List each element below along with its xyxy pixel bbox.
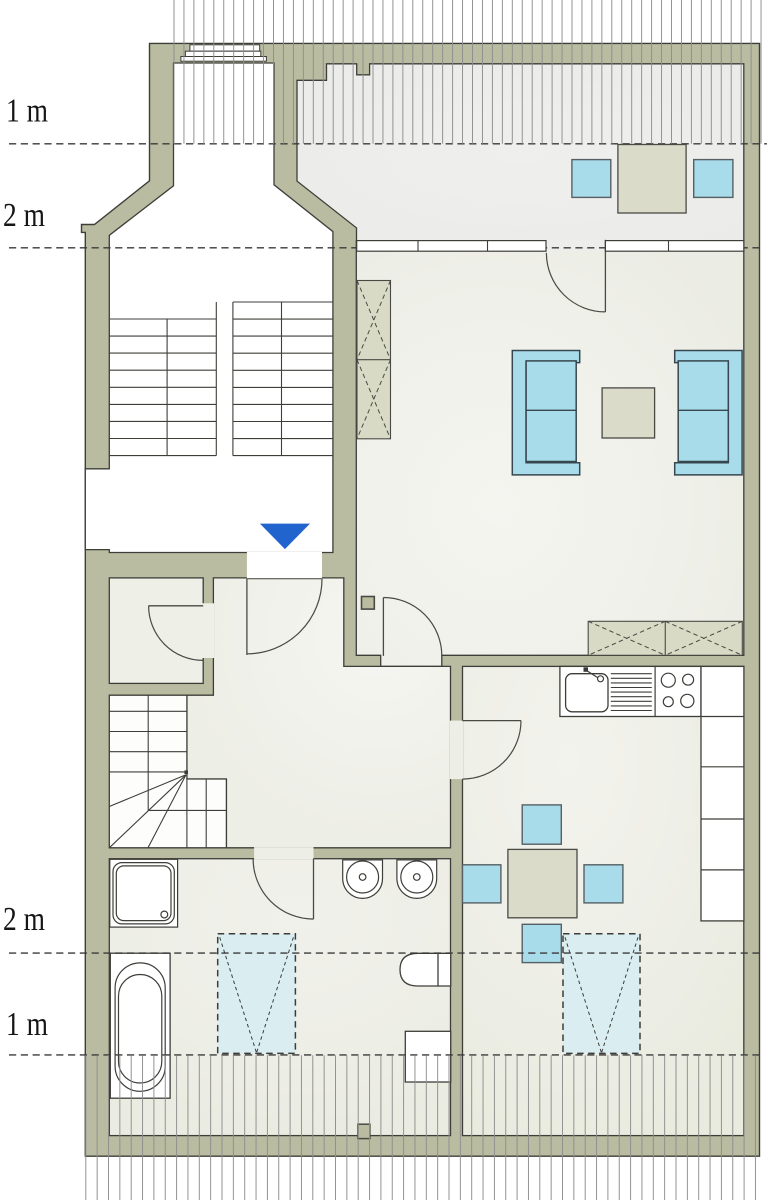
- svg-text:1 m: 1 m: [6, 1006, 48, 1043]
- svg-text:2 m: 2 m: [3, 901, 45, 938]
- svg-text:2 m: 2 m: [3, 197, 45, 234]
- svg-text:1 m: 1 m: [6, 92, 48, 129]
